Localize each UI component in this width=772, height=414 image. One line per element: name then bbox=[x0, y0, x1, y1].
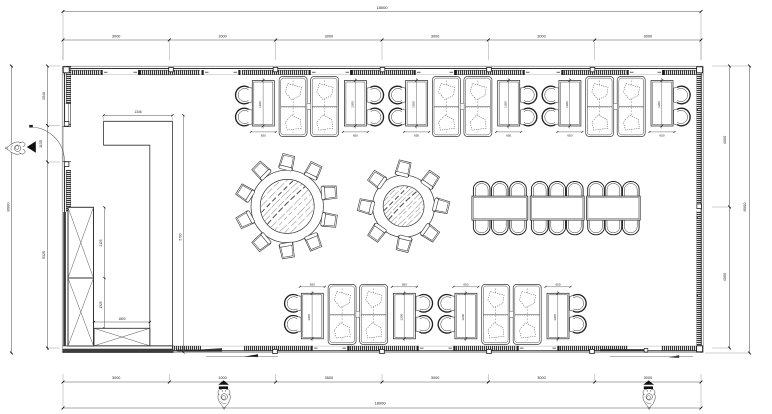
svg-text:1200: 1200 bbox=[504, 101, 508, 108]
svg-text:1346: 1346 bbox=[134, 110, 141, 114]
svg-text:3000: 3000 bbox=[644, 376, 652, 380]
svg-text:5700: 5700 bbox=[178, 233, 182, 240]
svg-text:1800: 1800 bbox=[118, 317, 125, 321]
svg-text:3000: 3000 bbox=[644, 35, 652, 39]
svg-text:18000: 18000 bbox=[376, 5, 388, 10]
svg-text:3500: 3500 bbox=[325, 376, 333, 380]
svg-text:1000: 1000 bbox=[218, 35, 226, 39]
svg-text:650: 650 bbox=[555, 283, 560, 287]
svg-text:650: 650 bbox=[261, 133, 266, 137]
svg-text:3000: 3000 bbox=[431, 35, 439, 39]
svg-text:8000: 8000 bbox=[742, 202, 747, 212]
svg-text:650: 650 bbox=[414, 133, 419, 137]
svg-text:1200: 1200 bbox=[399, 314, 403, 321]
svg-text:1200: 1200 bbox=[307, 314, 311, 321]
svg-text:1000: 1000 bbox=[218, 376, 226, 380]
svg-text:18000: 18000 bbox=[374, 401, 386, 406]
svg-text:3000: 3000 bbox=[325, 35, 333, 39]
svg-text:3000: 3000 bbox=[537, 376, 545, 380]
svg-text:650: 650 bbox=[402, 283, 407, 287]
svg-text:1200: 1200 bbox=[412, 101, 416, 108]
svg-text:1200: 1200 bbox=[657, 101, 661, 108]
svg-text:1200: 1200 bbox=[553, 314, 557, 321]
svg-text:650: 650 bbox=[310, 283, 315, 287]
svg-text:3000: 3000 bbox=[112, 376, 120, 380]
svg-text:650: 650 bbox=[353, 133, 358, 137]
svg-text:1135: 1135 bbox=[39, 140, 43, 148]
svg-text:3000: 3000 bbox=[112, 35, 120, 39]
svg-text:8000: 8000 bbox=[6, 202, 11, 212]
svg-text:4000: 4000 bbox=[723, 273, 727, 281]
svg-text:2125: 2125 bbox=[99, 239, 103, 246]
svg-text:1325: 1325 bbox=[99, 301, 103, 308]
svg-text:1200: 1200 bbox=[258, 101, 262, 108]
svg-text:1540: 1540 bbox=[42, 92, 46, 100]
svg-text:4000: 4000 bbox=[723, 136, 727, 144]
svg-text:650: 650 bbox=[463, 283, 468, 287]
svg-text:1200: 1200 bbox=[461, 314, 465, 321]
svg-text:1200: 1200 bbox=[565, 101, 569, 108]
svg-text:3000: 3000 bbox=[431, 376, 439, 380]
svg-text:1200: 1200 bbox=[350, 101, 354, 108]
svg-text:650: 650 bbox=[659, 133, 664, 137]
svg-text:5325: 5325 bbox=[42, 251, 46, 259]
svg-text:650: 650 bbox=[506, 133, 511, 137]
svg-text:650: 650 bbox=[567, 133, 572, 137]
svg-text:3000: 3000 bbox=[537, 35, 545, 39]
